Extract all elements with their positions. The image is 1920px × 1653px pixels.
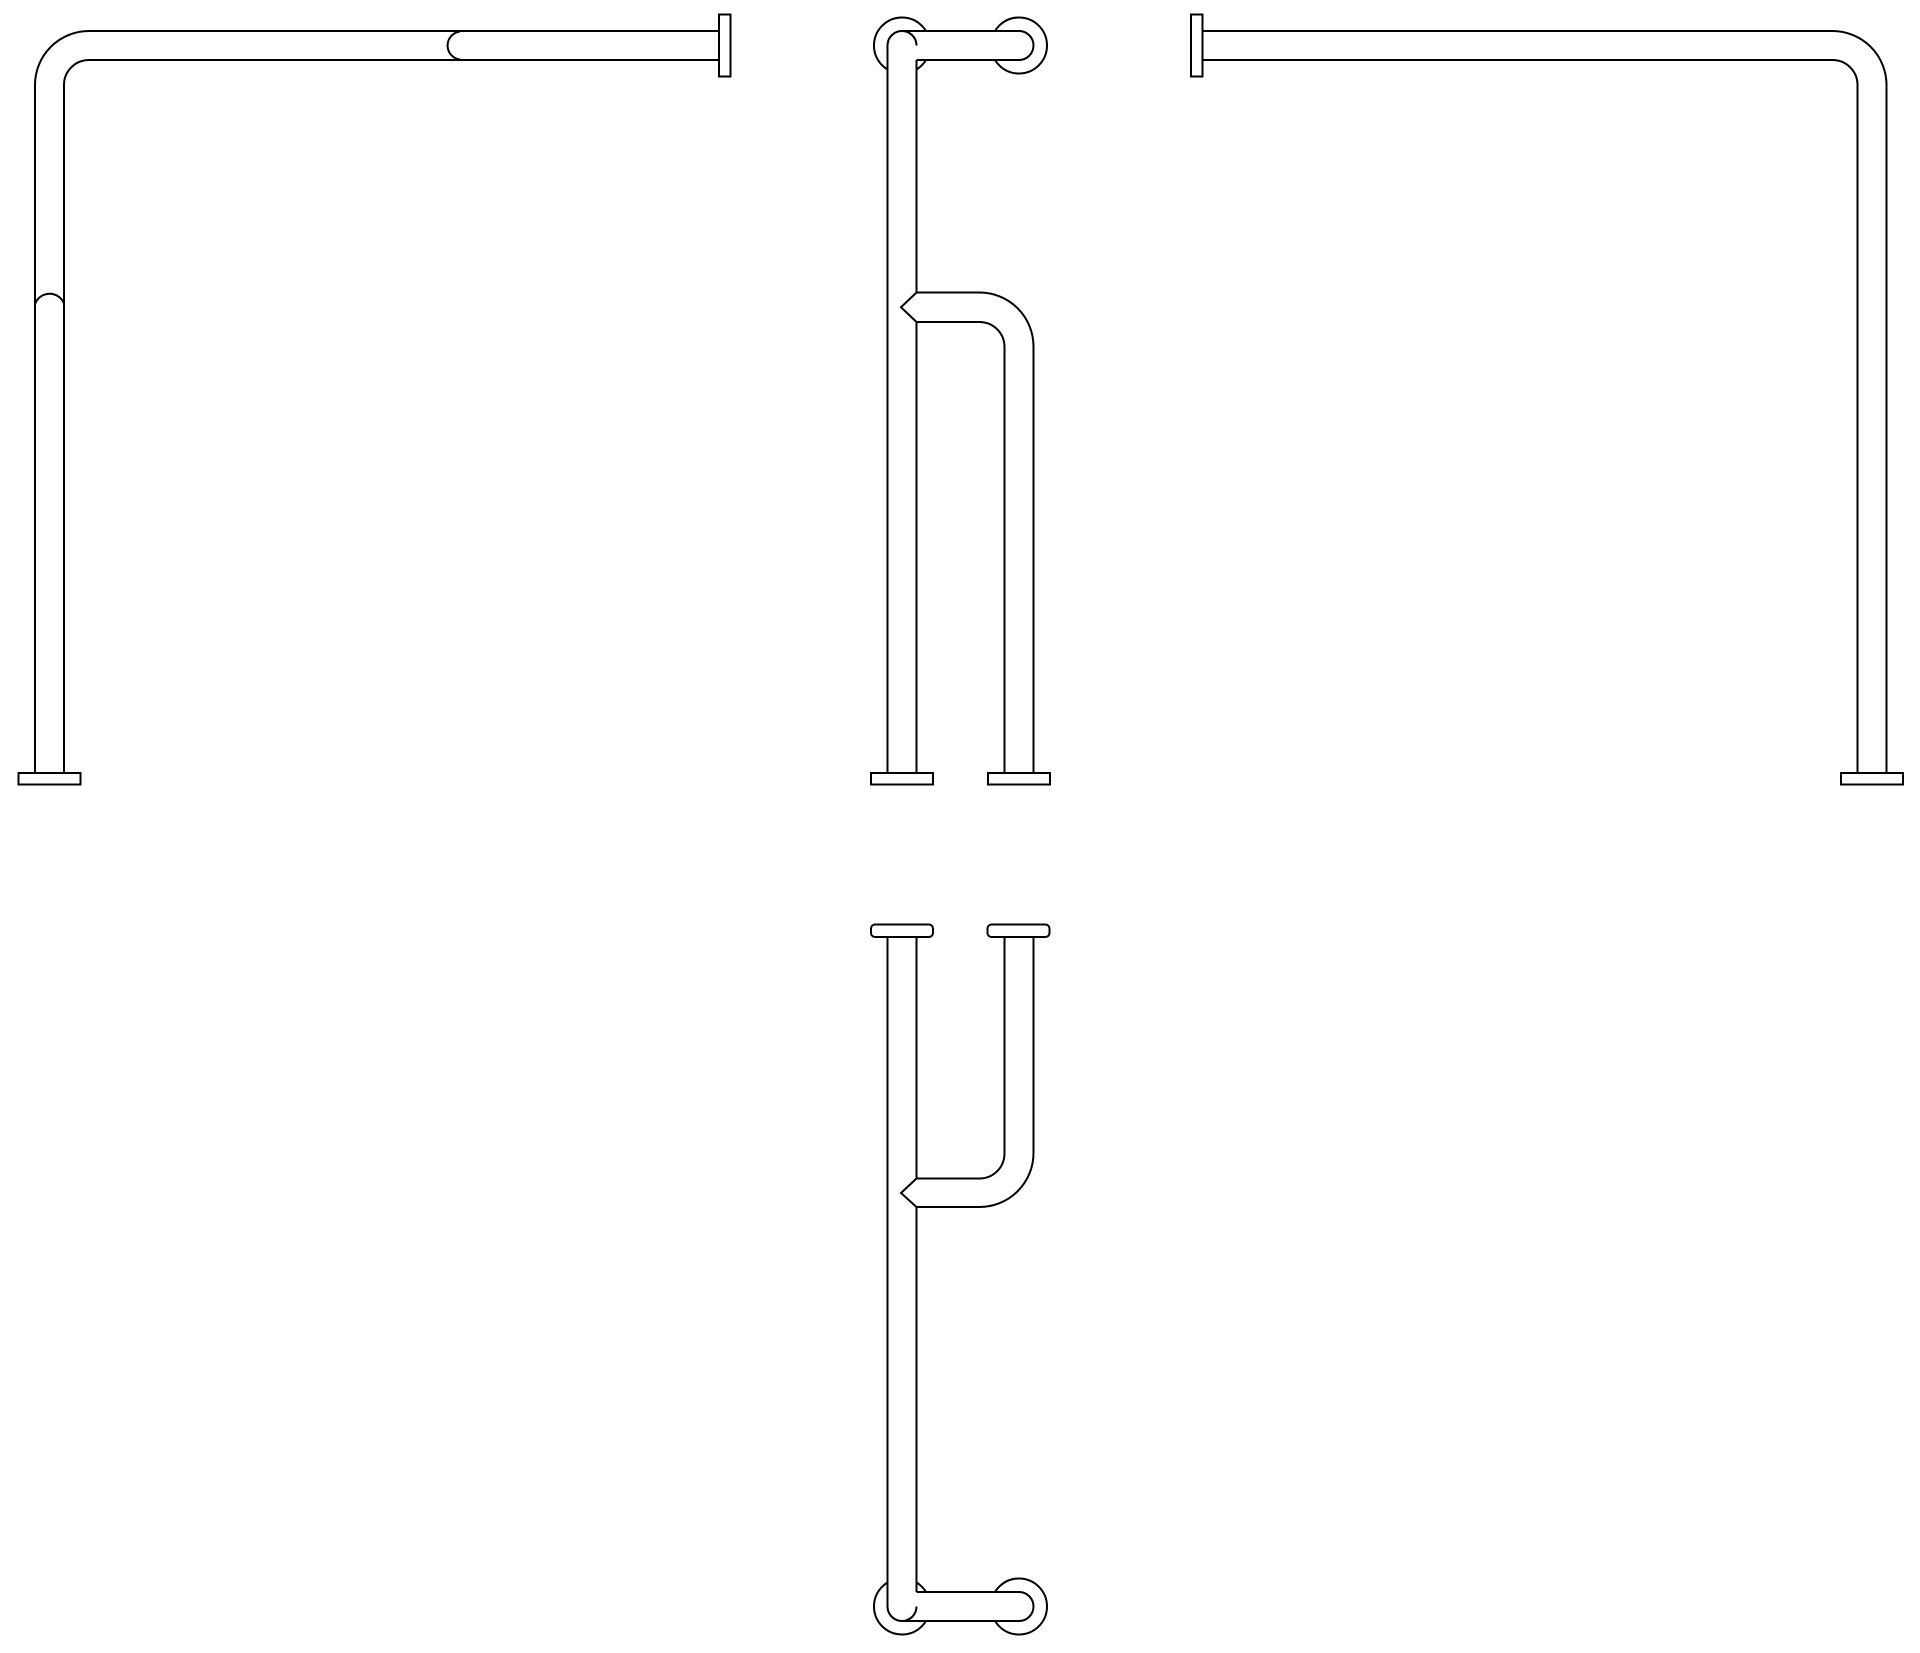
side-elevation-view-fill-2 [888, 31, 917, 773]
left-elevation-view-path-7 [35, 294, 64, 304]
plan-view-rect-15 [988, 925, 1050, 938]
left-elevation-view-rect-8 [719, 15, 731, 77]
drawing-svg [0, 0, 1920, 1653]
cad-sheet [0, 0, 1920, 1653]
plan-view-rect-14 [871, 925, 933, 938]
side-elevation-view-rect-14 [871, 773, 933, 785]
plan-view-path-13 [917, 937, 1034, 1207]
plan-view-path-12 [917, 937, 1005, 1179]
side-elevation-view [871, 18, 1050, 785]
right-elevation-view-path-0 [1203, 31, 1887, 773]
right-elevation-view-path-1 [1203, 60, 1858, 773]
left-elevation-view [19, 15, 731, 785]
left-elevation-view-path-2 [35, 31, 89, 85]
side-elevation-view-fill-3 [902, 31, 1033, 60]
plan-view-fill-3 [902, 1592, 1034, 1621]
side-elevation-view-path-12 [917, 293, 1034, 774]
left-elevation-view-path-3 [64, 60, 89, 85]
right-elevation-view [1191, 15, 1903, 785]
side-elevation-view-path-13 [917, 322, 1005, 773]
right-elevation-view-rect-3 [1841, 773, 1903, 785]
plan-view [871, 925, 1050, 1635]
plan-view-fill-2 [888, 937, 917, 1621]
left-elevation-view-path-6 [448, 32, 460, 60]
side-elevation-view-rect-15 [988, 773, 1050, 785]
left-elevation-view-rect-9 [19, 773, 81, 785]
right-elevation-view-rect-2 [1191, 15, 1203, 77]
